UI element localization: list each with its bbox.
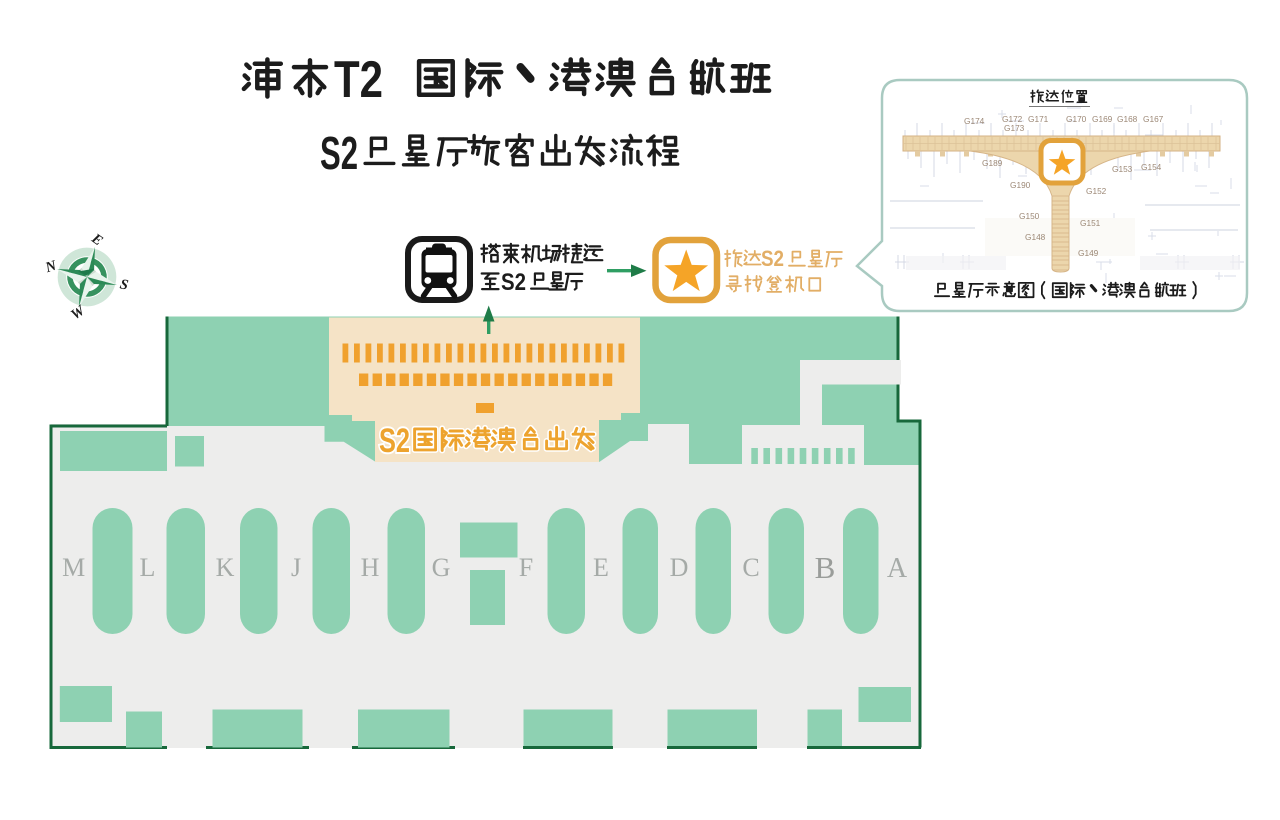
- svg-text:G169: G169: [1092, 114, 1113, 124]
- svg-text:G149: G149: [1078, 248, 1099, 258]
- svg-text:F: F: [519, 553, 533, 582]
- svg-text:G168: G168: [1117, 114, 1138, 124]
- svg-text:G151: G151: [1080, 218, 1101, 228]
- svg-text:G170: G170: [1066, 114, 1087, 124]
- svg-text:B: B: [815, 550, 836, 585]
- svg-text:C: C: [742, 553, 759, 582]
- svg-text:G: G: [432, 553, 451, 582]
- svg-text:T2: T2: [334, 51, 383, 109]
- svg-text:N: N: [43, 258, 59, 277]
- svg-text:G190: G190: [1010, 180, 1031, 190]
- svg-text:S2: S2: [761, 246, 784, 271]
- svg-text:L: L: [140, 553, 156, 582]
- svg-text:H: H: [361, 553, 380, 582]
- svg-text:S2: S2: [320, 127, 358, 179]
- svg-text:J: J: [291, 553, 301, 582]
- svg-text:G154: G154: [1141, 162, 1162, 172]
- svg-text:G153: G153: [1112, 164, 1133, 174]
- svg-text:E: E: [593, 553, 609, 582]
- svg-text:G150: G150: [1019, 211, 1040, 221]
- svg-text:G189: G189: [982, 158, 1003, 168]
- svg-text:G173: G173: [1004, 123, 1025, 133]
- svg-text:G167: G167: [1143, 114, 1164, 124]
- svg-text:G148: G148: [1025, 232, 1046, 242]
- svg-text:E: E: [88, 230, 106, 249]
- svg-text:G174: G174: [964, 116, 985, 126]
- svg-text:M: M: [62, 553, 85, 582]
- svg-text:S: S: [118, 276, 129, 293]
- svg-text:A: A: [887, 553, 908, 584]
- svg-text:K: K: [216, 553, 235, 582]
- svg-text:G152: G152: [1086, 186, 1107, 196]
- svg-text:D: D: [670, 553, 689, 582]
- svg-text:S2: S2: [501, 269, 526, 296]
- svg-text:G171: G171: [1028, 114, 1049, 124]
- svg-text:S2: S2: [379, 422, 410, 460]
